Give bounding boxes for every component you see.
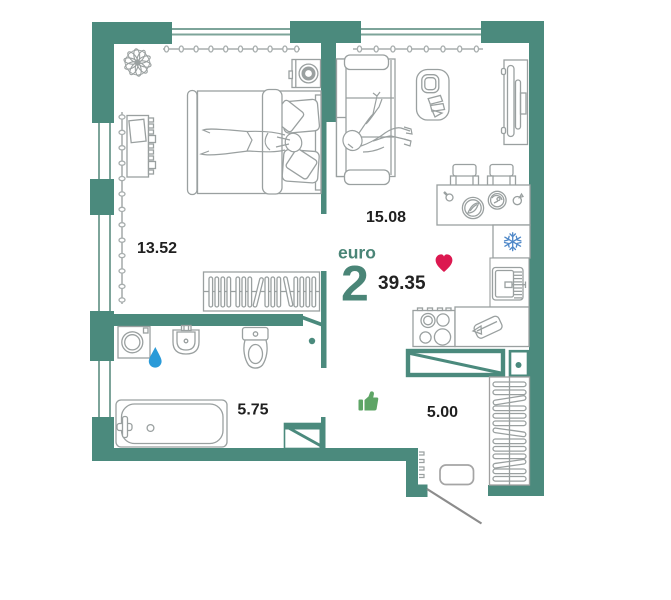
svg-text:5.00: 5.00 [427,404,458,421]
svg-text:15.08: 15.08 [366,209,406,226]
svg-text:2: 2 [341,256,369,312]
svg-text:5.75: 5.75 [237,402,268,419]
svg-text:39.35: 39.35 [378,273,426,294]
svg-text:13.52: 13.52 [137,240,177,257]
